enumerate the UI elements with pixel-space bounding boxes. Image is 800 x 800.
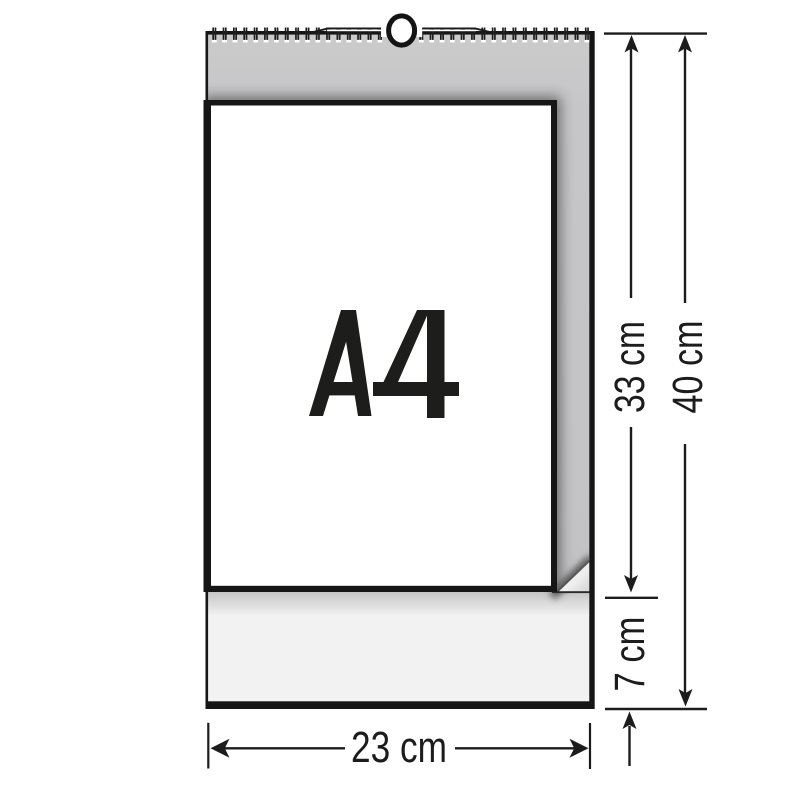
svg-text:23 cm: 23 cm: [351, 723, 447, 772]
svg-text:40 cm: 40 cm: [664, 321, 712, 414]
svg-text:33 cm: 33 cm: [606, 321, 654, 413]
svg-text:7 cm: 7 cm: [606, 617, 654, 692]
